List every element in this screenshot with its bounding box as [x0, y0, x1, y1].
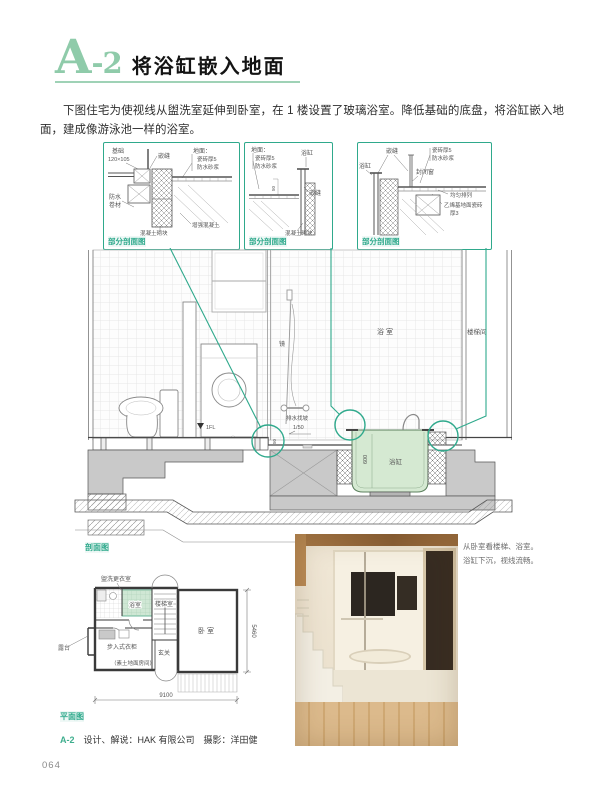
detail-drawing-1: 基础 120×105 嵌缝 地面： 瓷砖厚5 防水砂浆 防水 卷材 混凝土砌块 … [104, 143, 236, 237]
floor-plan: 9100 5460 盥洗更衣室 浴室 楼梯室 卧室 步入式衣柜 玄关 （素土地面… [55, 572, 290, 727]
d1-label-tile: 瓷砖厚5 [197, 155, 217, 163]
d3-label-thick: 厚3 [450, 210, 459, 217]
section-tag: 剖面图 [85, 542, 109, 553]
credit-text: 设计、解说：HAK 有限公司 摄影：洋田健 [84, 735, 258, 745]
book-page: A -2 将浴缸嵌入地面 下图住宅为使视线从盥洗室延伸到卧室，在 1 楼设置了玻… [0, 0, 600, 808]
d1-label-mortar: 防水砂浆 [197, 163, 220, 171]
plan-height-dim: 5460 [250, 624, 256, 638]
stairhall-label: 楼梯间 [467, 327, 487, 336]
credit-line: A-2设计、解说：HAK 有限公司 摄影：洋田健 [60, 733, 258, 746]
plan-deck [178, 674, 237, 692]
section-logo-letter: A [55, 38, 91, 78]
detail-drawing-3: 嵌缝 瓷砖厚5 防水砂浆 浴缸 封闭窗 均匀排列 乙烯基地面瓷砖 厚3 [358, 143, 488, 237]
photo-caption: 从卧室看楼梯、浴室。 浴缸下沉，视线流畅。 [463, 540, 559, 567]
d2-label-tub: 浴缸 [301, 149, 313, 157]
photo-vignette [295, 534, 458, 746]
bath-label: 浴室 [129, 601, 141, 609]
plan-stairs [154, 594, 176, 634]
page-title: 将浴缸嵌入地面 [132, 50, 286, 79]
slope-ratio: 1/50 [293, 425, 304, 431]
laundry-label: 盥洗更衣室 [101, 575, 131, 583]
bathroom-label: 浴室 [377, 327, 395, 336]
credit-tag: A-2 [60, 735, 75, 745]
detail-drawing-2: 地面： 瓷砖厚5 防水砂浆 浴缸 嵌缝 50 混凝土砌块 [245, 143, 329, 237]
d3-label-caulk: 嵌缝 [386, 147, 398, 155]
d3-label-tub: 浴缸 [359, 162, 371, 170]
d2-label-mortar: 防水砂浆 [255, 162, 278, 170]
d3-label-tile: 瓷砖厚5 [432, 146, 452, 154]
foundation [75, 432, 512, 542]
section-drawing: 镜 600 浴缸 [55, 248, 525, 560]
intro-paragraph: 下图住宅为使视线从盥洗室延伸到卧室，在 1 楼设置了玻璃浴室。降低基础的底盘，将… [40, 102, 564, 139]
wall-cabinet [212, 250, 266, 312]
plan-tag: 平面图 [60, 711, 84, 722]
d1-label-wp2: 卷材 [109, 201, 121, 209]
bedroom-label: 卧室 [198, 626, 216, 635]
page-header: A -2 将浴缸嵌入地面 [55, 38, 300, 83]
partition-wall [183, 302, 196, 440]
d1-label-wp1: 防水 [109, 193, 121, 201]
terrace-label: 露台 [58, 644, 70, 652]
closet-label: 步入式衣柜 [107, 643, 137, 651]
entry-note: （素土地面房间） [111, 659, 155, 667]
detail-1-tag: 部分剖面图 [108, 236, 146, 247]
detail-box-2: 地面： 瓷砖厚5 防水砂浆 浴缸 嵌缝 50 混凝土砌块 部分剖面图 [244, 142, 333, 250]
detail-3-tag: 部分剖面图 [362, 236, 400, 247]
step-dim: 50 [272, 438, 277, 444]
title-row: A -2 将浴缸嵌入地面 [55, 38, 300, 83]
interior-photo [295, 534, 458, 746]
section-logo-number: -2 [91, 46, 121, 80]
d2-label-floor: 地面： [251, 146, 269, 154]
d2-label-tile: 瓷砖厚5 [255, 154, 275, 162]
tub-label: 浴缸 [389, 457, 403, 466]
d2-geometry [249, 169, 315, 235]
fl-marker: 1FL [206, 425, 215, 431]
d1-label-caulk: 嵌缝 [158, 152, 170, 160]
tub-depth-dim: 600 [363, 455, 369, 464]
caption-line-2: 浴缸下沉，视线流畅。 [463, 554, 559, 568]
stair-label: 楼梯室 [155, 600, 173, 608]
page-number: 064 [42, 760, 61, 771]
d1-label-floor: 地面： [193, 147, 211, 155]
d3-label-mortar: 防水砂浆 [432, 154, 455, 162]
d1-label-size: 120×105 [108, 157, 130, 163]
caption-line-1: 从卧室看楼梯、浴室。 [463, 540, 559, 554]
d3-label-vinyl: 乙烯基地面瓷砖 [444, 201, 483, 209]
plan-width-dim: 9100 [159, 693, 173, 699]
detail-2-tag: 部分剖面图 [249, 236, 287, 247]
entry-label: 玄关 [158, 649, 170, 657]
detail-box-1: 基础 120×105 嵌缝 地面： 瓷砖厚5 防水砂浆 防水 卷材 混凝土砌块 … [103, 142, 240, 250]
slope-label: 排水找坡 [286, 414, 309, 422]
d1-label-foundation: 基础 [112, 147, 124, 155]
d2-dim-50: 50 [271, 185, 276, 191]
d3-label-even: 均匀排列 [450, 191, 473, 199]
detail-box-3: 嵌缝 瓷砖厚5 防水砂浆 浴缸 封闭窗 均匀排列 乙烯基地面瓷砖 厚3 [357, 142, 492, 250]
mirror-label: 镜 [279, 340, 285, 348]
